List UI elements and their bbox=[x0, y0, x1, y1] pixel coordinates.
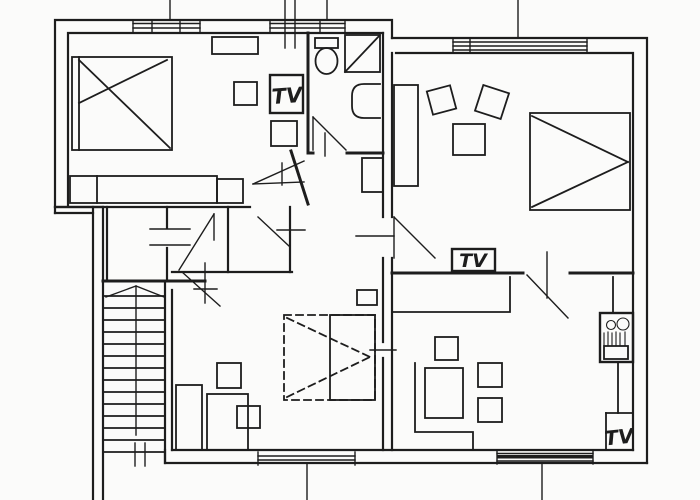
room-bottom-middle bbox=[176, 290, 377, 450]
chair-tilted-2 bbox=[475, 85, 509, 119]
chair-1 bbox=[435, 337, 458, 360]
room-right-bedroom: TV bbox=[394, 85, 630, 272]
bed-dashed-icon bbox=[284, 315, 375, 400]
chair-3 bbox=[478, 398, 502, 422]
bench bbox=[415, 363, 473, 450]
side-table-2 bbox=[271, 121, 297, 146]
door-storage-2 bbox=[179, 214, 214, 270]
door-living-room bbox=[527, 252, 568, 318]
tv-cabinet: TV bbox=[452, 249, 495, 272]
tv-label: TV bbox=[459, 250, 488, 272]
door-storage-1 bbox=[150, 229, 190, 245]
door-right-bedroom bbox=[356, 217, 435, 258]
chair-2 bbox=[478, 363, 502, 387]
cabinet-left bbox=[176, 385, 202, 450]
room-living-kitchen: TV bbox=[392, 277, 636, 450]
counter bbox=[392, 277, 510, 312]
tv-label: TV bbox=[603, 423, 636, 450]
bathroom bbox=[315, 35, 380, 118]
table-small bbox=[217, 363, 241, 388]
hall-closet bbox=[362, 158, 383, 192]
floorplan-drawing: TV TV bbox=[0, 0, 700, 500]
window-top-right bbox=[453, 38, 587, 53]
table bbox=[453, 124, 485, 155]
sink-icon bbox=[352, 84, 380, 118]
wardrobe bbox=[394, 85, 418, 186]
kitchen-counter-column: TV bbox=[603, 362, 636, 450]
desk bbox=[207, 394, 248, 450]
tv-cabinet: TV bbox=[270, 75, 305, 113]
bed-icon bbox=[530, 113, 630, 210]
staircase bbox=[103, 286, 165, 466]
side-table bbox=[234, 82, 257, 105]
stove-icon bbox=[600, 277, 633, 362]
tv-label: TV bbox=[271, 83, 305, 109]
door-bathroom bbox=[313, 117, 346, 156]
floorplan-scan: TV TV bbox=[0, 0, 700, 500]
hallway bbox=[362, 158, 383, 192]
room-top-left-bedroom: TV bbox=[70, 37, 305, 203]
interior-walls bbox=[55, 33, 633, 450]
window-top-mid bbox=[270, 20, 345, 33]
shower-icon bbox=[345, 35, 380, 72]
toilet-cistern bbox=[315, 38, 338, 48]
toilet-icon bbox=[316, 48, 338, 74]
chair-tilted-1 bbox=[427, 85, 456, 114]
shelf bbox=[212, 37, 258, 54]
door-storage-3 bbox=[258, 217, 305, 246]
shelf-top-right bbox=[357, 290, 377, 305]
bed-icon bbox=[72, 57, 172, 150]
door-top-left-room bbox=[253, 161, 304, 185]
dining-table bbox=[425, 368, 463, 418]
window-top-left bbox=[133, 20, 200, 33]
sideboard bbox=[70, 176, 243, 203]
